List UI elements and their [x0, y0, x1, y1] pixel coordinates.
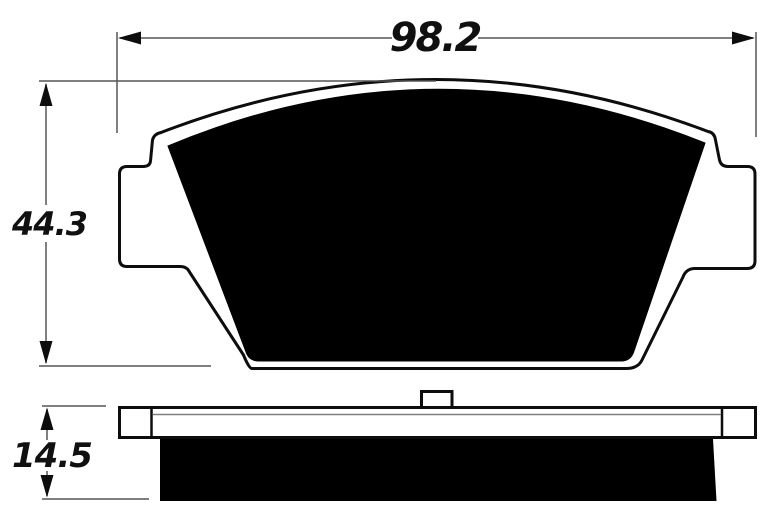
- front-view: [120, 79, 756, 368]
- side-plate: [120, 408, 756, 438]
- brake-pad-diagram: 98.2 44.3 14.5: [0, 0, 778, 520]
- down-arrowhead-icon: [41, 475, 54, 498]
- wear-tab: [422, 392, 453, 407]
- width-dimension-label: 98.2: [390, 15, 481, 61]
- down-arrowhead-icon: [40, 341, 53, 364]
- left-arrowhead-icon: [118, 32, 141, 45]
- right-arrowhead-icon: [732, 32, 755, 45]
- side-view: [120, 392, 756, 502]
- side-friction-material: [160, 439, 717, 501]
- up-arrowhead-icon: [40, 83, 53, 106]
- thickness-dimension-label: 14.5: [12, 436, 92, 476]
- height-dimension-label: 44.3: [11, 205, 87, 243]
- up-arrowhead-icon: [41, 408, 54, 431]
- friction-material: [168, 89, 705, 361]
- diagram-canvas: 98.2 44.3 14.5: [0, 0, 778, 520]
